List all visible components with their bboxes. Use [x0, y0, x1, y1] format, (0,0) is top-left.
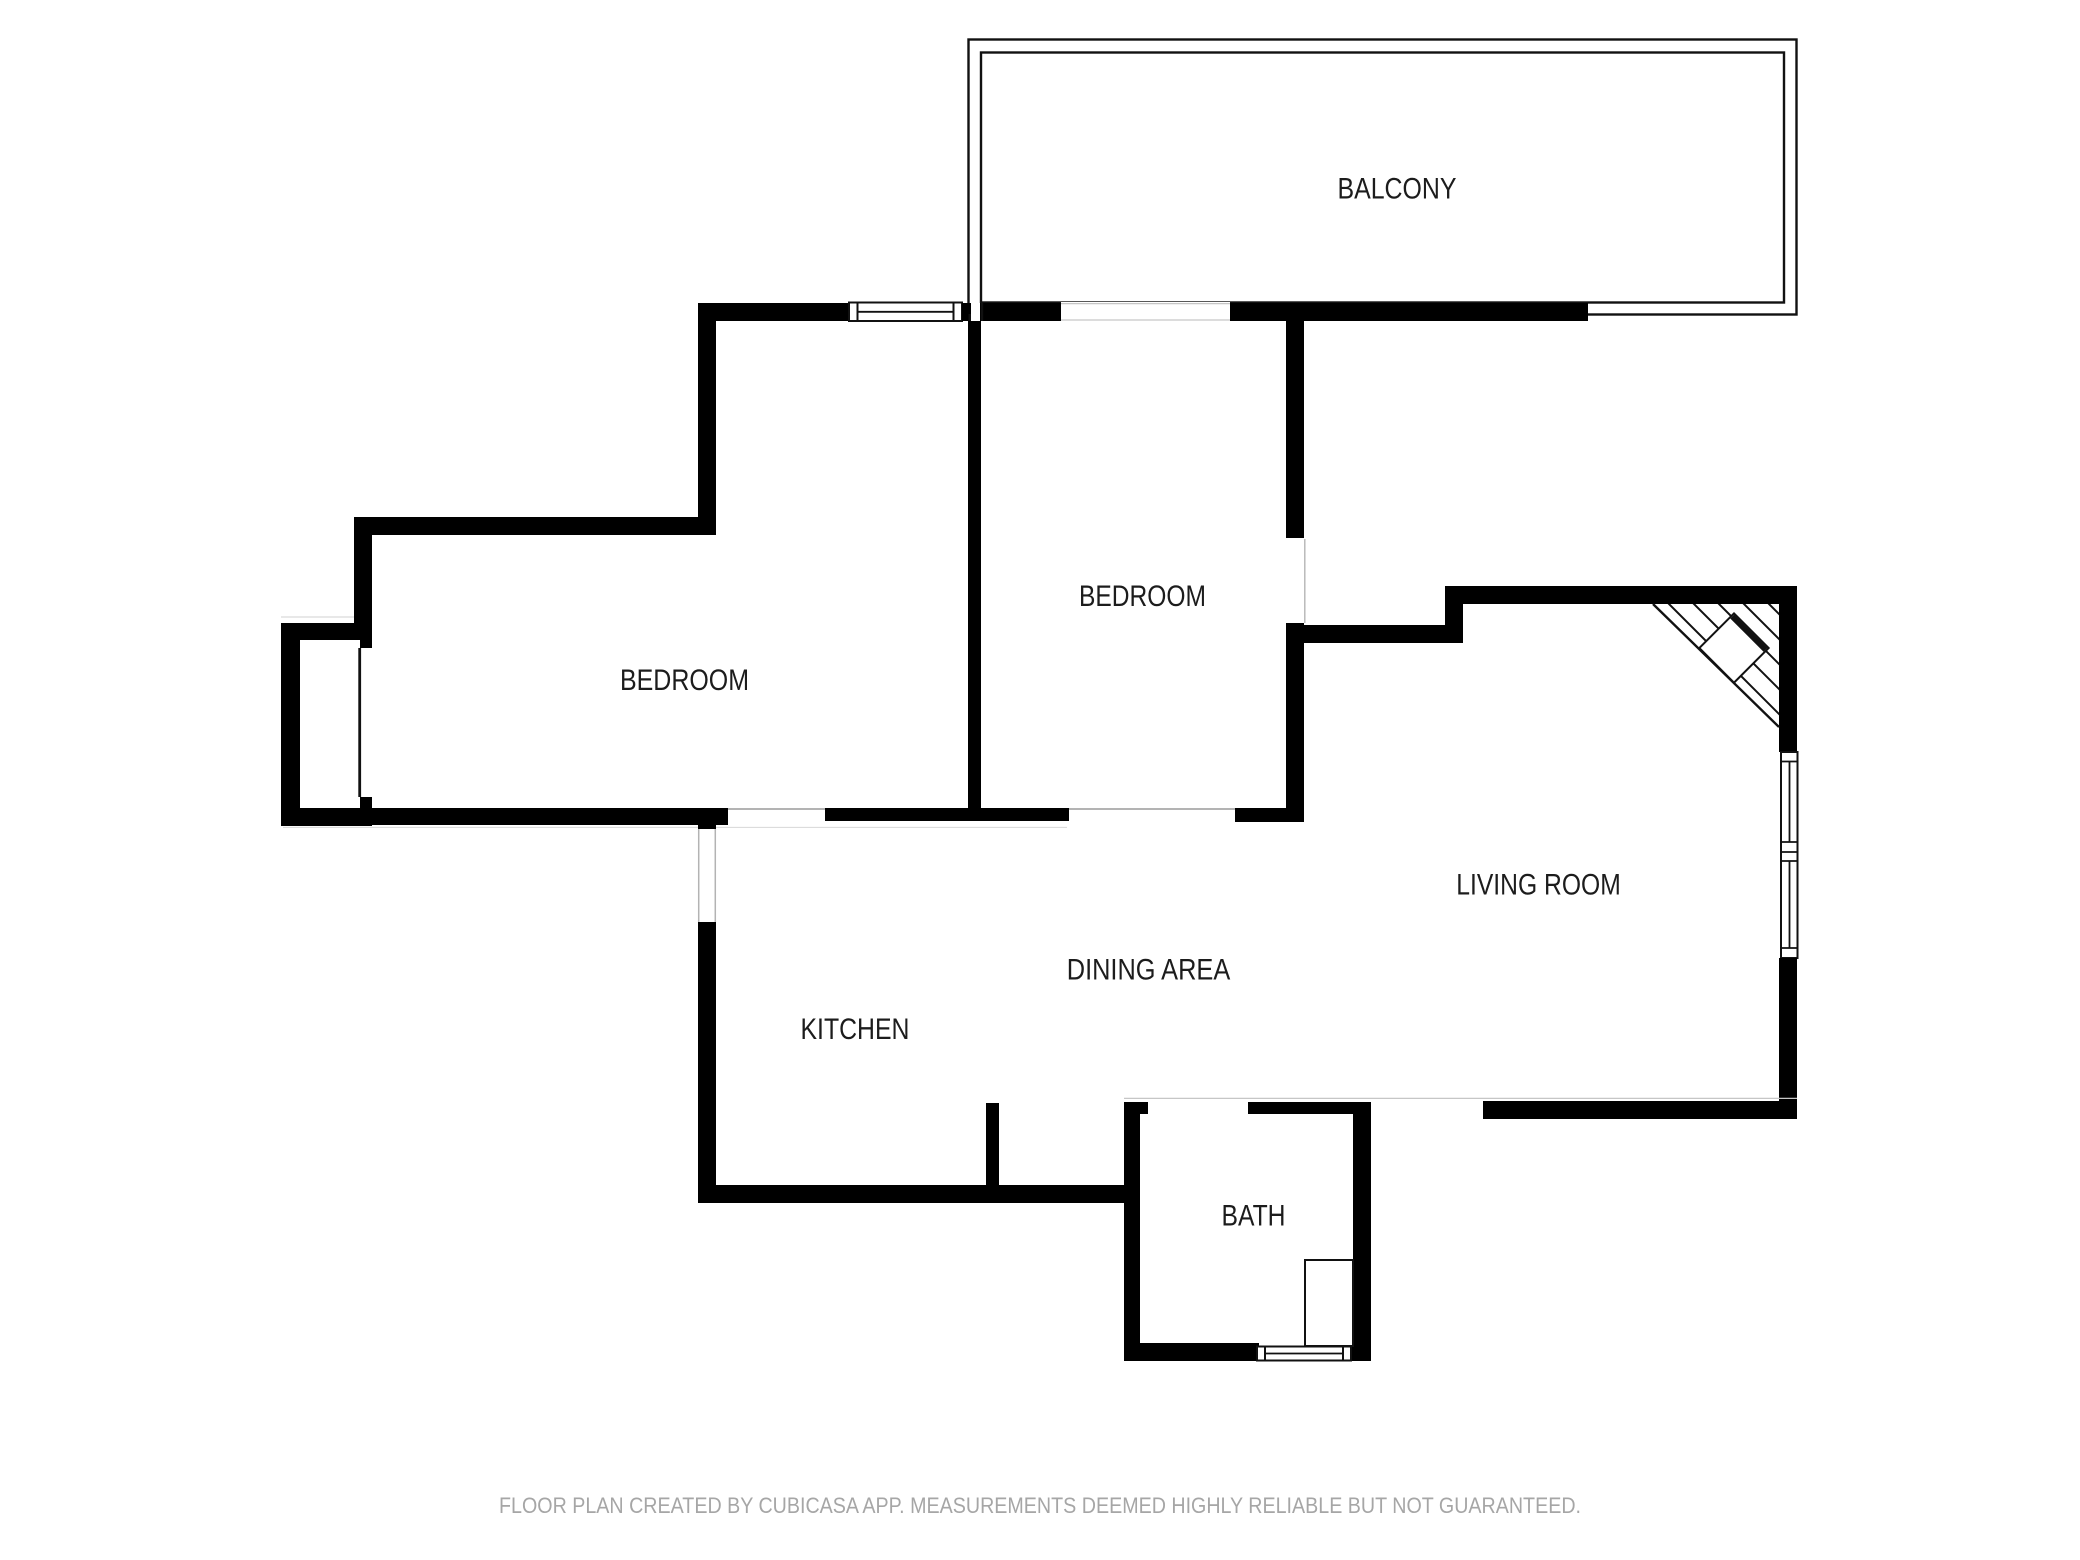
svg-text:BEDROOM: BEDROOM	[1079, 580, 1206, 613]
svg-text:LIVING ROOM: LIVING ROOM	[1456, 869, 1621, 902]
svg-text:BALCONY: BALCONY	[1338, 173, 1457, 206]
svg-text:KITCHEN: KITCHEN	[801, 1013, 910, 1046]
svg-text:DINING AREA: DINING AREA	[1067, 954, 1231, 987]
svg-text:BATH: BATH	[1222, 1200, 1286, 1233]
svg-text:FLOOR PLAN CREATED BY CUBICASA: FLOOR PLAN CREATED BY CUBICASA APP. MEAS…	[499, 1493, 1581, 1518]
svg-text:BEDROOM: BEDROOM	[620, 664, 749, 697]
